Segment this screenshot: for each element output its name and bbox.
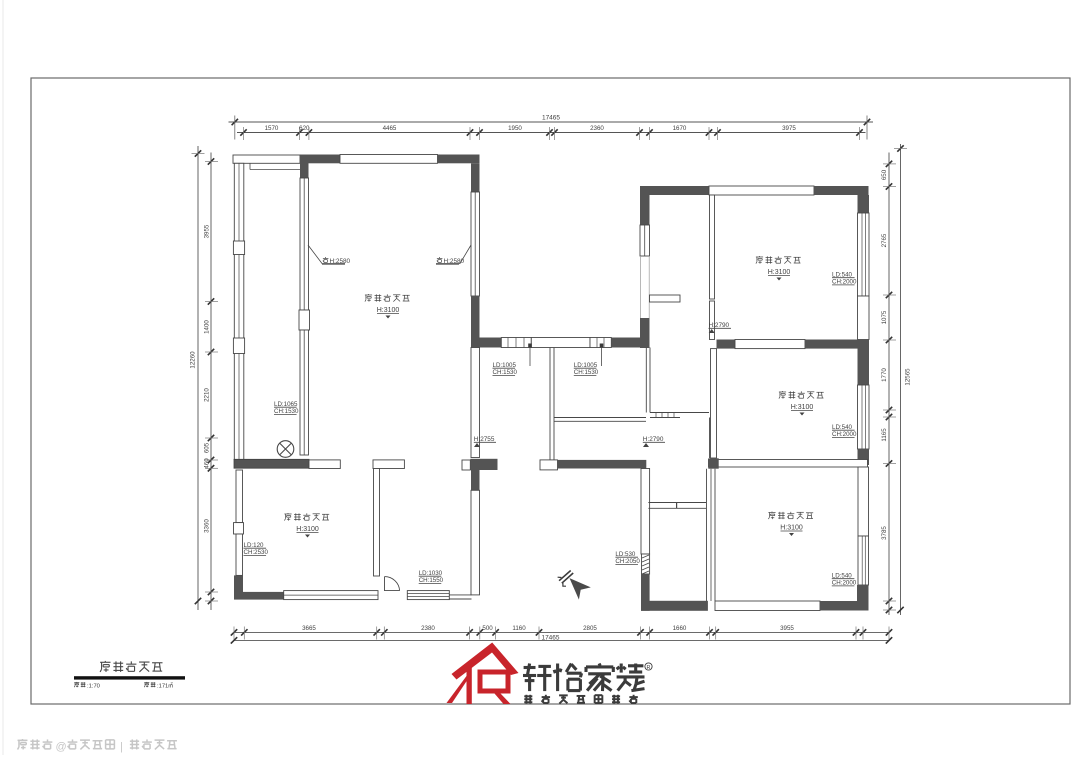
svg-text:2210: 2210 [204,388,211,402]
svg-text:3360: 3360 [204,519,211,533]
svg-text:|: | [120,741,123,753]
svg-text:3955: 3955 [204,224,211,238]
svg-text:17465: 17465 [542,115,560,122]
svg-text:H:3100: H:3100 [377,307,400,314]
svg-text:H:3100: H:3100 [791,404,814,411]
svg-text:1950: 1950 [508,125,522,132]
svg-text:12565: 12565 [905,368,912,386]
svg-text:1075: 1075 [881,310,888,324]
svg-text:460: 460 [204,458,211,469]
svg-text:605: 605 [204,442,211,453]
svg-text:12260: 12260 [190,351,197,369]
svg-text:620: 620 [299,125,310,132]
svg-text:H:3100: H:3100 [296,526,319,533]
svg-text:H:3100: H:3100 [780,525,803,532]
svg-text:1570: 1570 [265,125,279,132]
svg-text:1670: 1670 [673,125,687,132]
svg-text:1160: 1160 [512,625,526,632]
svg-text:H:3100: H:3100 [768,269,791,276]
svg-text:R: R [647,665,651,671]
svg-text:1400: 1400 [204,320,211,334]
svg-text:2805: 2805 [583,625,597,632]
svg-text:2765: 2765 [881,233,888,247]
svg-text:3665: 3665 [302,625,316,632]
svg-text:3955: 3955 [780,625,794,632]
svg-text:650: 650 [881,169,888,180]
svg-text:3785: 3785 [881,526,888,540]
svg-text:4465: 4465 [383,125,397,132]
svg-text:2380: 2380 [421,625,435,632]
svg-text:2360: 2360 [590,125,604,132]
svg-text:1165: 1165 [881,428,888,442]
svg-text:@: @ [56,741,67,753]
svg-text::1:70: :1:70 [87,684,100,690]
svg-text:500: 500 [482,625,493,632]
svg-text:3975: 3975 [782,125,796,132]
svg-text:1770: 1770 [881,368,888,382]
svg-text:1660: 1660 [673,625,687,632]
svg-text:17465: 17465 [541,635,559,642]
